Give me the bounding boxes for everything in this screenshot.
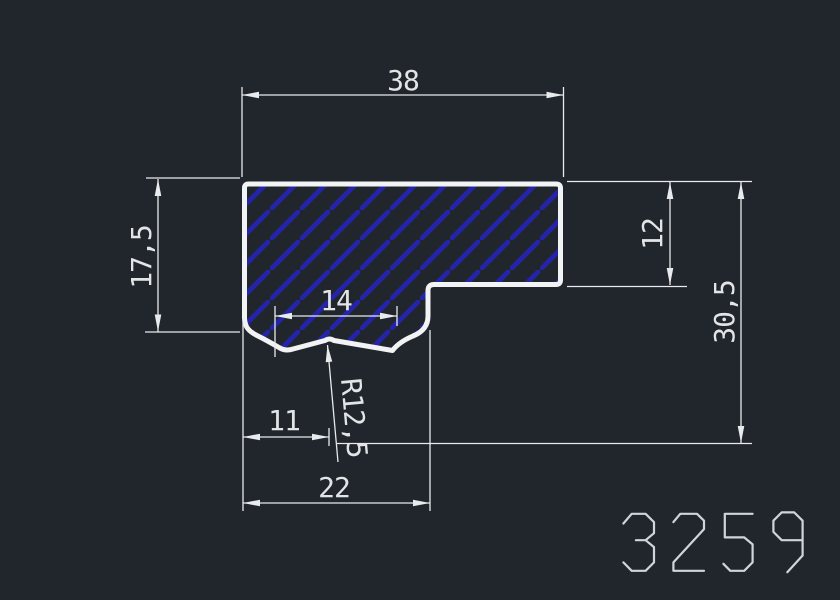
- profile-drawing: 38 17,5 14 11 22 12 30,5 R12,5: [0, 0, 840, 600]
- cad-drawing-canvas: 38 17,5 14 11 22 12 30,5 R12,5: [0, 0, 840, 600]
- dim-text-top-width: 38: [387, 64, 419, 97]
- dim-text-notch-width: 14: [320, 284, 352, 317]
- dim-text-bottom-width: 22: [318, 471, 350, 504]
- dim-text-notch-radius: R12,5: [334, 377, 374, 459]
- dim-text-notch-offset: 11: [268, 404, 300, 437]
- dim-text-left-height: 17,5: [125, 225, 158, 288]
- dim-text-total-height: 30,5: [708, 280, 741, 343]
- dim-text-step-height: 12: [636, 218, 669, 250]
